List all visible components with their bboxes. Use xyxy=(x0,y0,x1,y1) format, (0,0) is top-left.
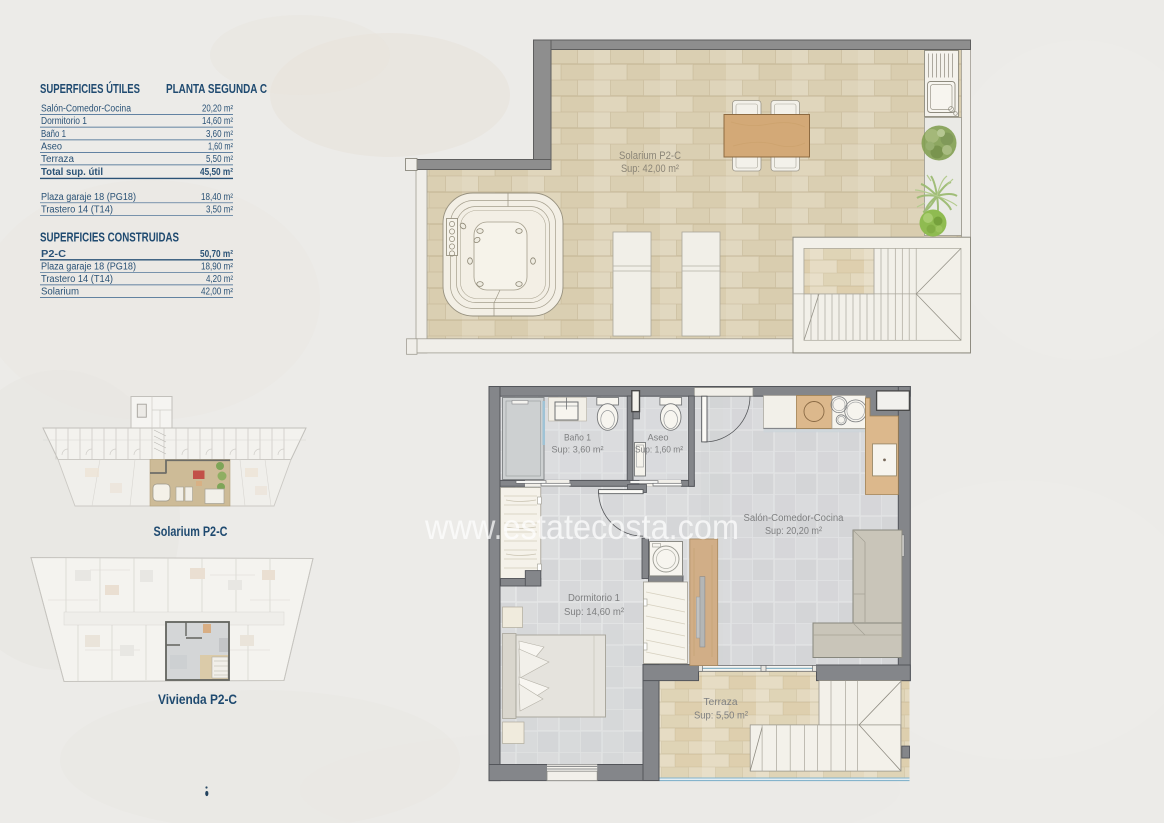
svg-text:Sup: 1,60 m²: Sup: 1,60 m² xyxy=(635,445,683,455)
svg-text:Sup: 3,60 m²: Sup: 3,60 m² xyxy=(552,445,604,455)
svg-text:Terraza: Terraza xyxy=(41,154,75,165)
svg-text:PLANTA SEGUNDA C: PLANTA SEGUNDA C xyxy=(166,82,267,96)
svg-text:Sup: 14,60 m²: Sup: 14,60 m² xyxy=(564,607,625,618)
svg-text:Solarium P2-C: Solarium P2-C xyxy=(619,150,681,162)
svg-text:SUPERFICIES CONSTRUIDAS: SUPERFICIES CONSTRUIDAS xyxy=(40,231,179,245)
svg-text:Dormitorio 1: Dormitorio 1 xyxy=(41,116,87,127)
svg-text:Baño 1: Baño 1 xyxy=(564,433,591,443)
svg-text:Trastero 14 (T14): Trastero 14 (T14) xyxy=(41,204,113,215)
svg-text:5,50 m²: 5,50 m² xyxy=(206,154,234,165)
svg-text:www.estatecosta.com: www.estatecosta.com xyxy=(424,508,739,547)
svg-text:Sup: 20,20 m²: Sup: 20,20 m² xyxy=(765,526,823,537)
svg-text:50,70 m²: 50,70 m² xyxy=(200,249,234,260)
svg-text:Trastero 14 (T14): Trastero 14 (T14) xyxy=(41,274,113,285)
svg-text:20,20 m²: 20,20 m² xyxy=(202,104,234,115)
svg-text:18,40 m²: 18,40 m² xyxy=(201,192,234,203)
svg-text:Plaza garaje 18 (PG18): Plaza garaje 18 (PG18) xyxy=(41,261,136,272)
svg-text:Aseo: Aseo xyxy=(648,433,669,443)
svg-text:14,60 m²: 14,60 m² xyxy=(202,116,234,127)
svg-text:3,60 m²: 3,60 m² xyxy=(206,129,234,140)
svg-text:3,50 m²: 3,50 m² xyxy=(206,204,234,215)
svg-text:Aseo: Aseo xyxy=(41,142,63,153)
svg-text:P2-C: P2-C xyxy=(41,249,66,260)
svg-text:Dormitorio 1: Dormitorio 1 xyxy=(568,593,620,604)
svg-text:Solarium: Solarium xyxy=(41,287,79,298)
svg-text:Total sup. útil: Total sup. útil xyxy=(41,167,103,178)
svg-text:Solarium P2-C: Solarium P2-C xyxy=(154,524,228,540)
svg-text:Sup: 42,00 m²: Sup: 42,00 m² xyxy=(621,163,679,175)
svg-text:Salón-Comedor-Cocina: Salón-Comedor-Cocina xyxy=(41,104,131,115)
svg-text:Salón-Comedor-Cocina: Salón-Comedor-Cocina xyxy=(744,513,844,524)
svg-text:45,50 m²: 45,50 m² xyxy=(200,167,234,178)
svg-text:18,90 m²: 18,90 m² xyxy=(201,261,234,272)
svg-text:Plaza garaje 18 (PG18): Plaza garaje 18 (PG18) xyxy=(41,192,136,203)
svg-text:Terraza: Terraza xyxy=(704,697,738,708)
svg-text:1,60 m²: 1,60 m² xyxy=(208,142,234,153)
svg-text:Sup: 5,50 m²: Sup: 5,50 m² xyxy=(694,711,749,722)
svg-text:Vivienda P2-C: Vivienda P2-C xyxy=(158,692,237,708)
svg-text:4,20 m²: 4,20 m² xyxy=(206,274,234,285)
svg-text:42,00 m²: 42,00 m² xyxy=(201,287,234,298)
svg-text:Baño 1: Baño 1 xyxy=(41,129,66,140)
svg-text:SUPERFICIES ÚTILES: SUPERFICIES ÚTILES xyxy=(40,81,140,96)
